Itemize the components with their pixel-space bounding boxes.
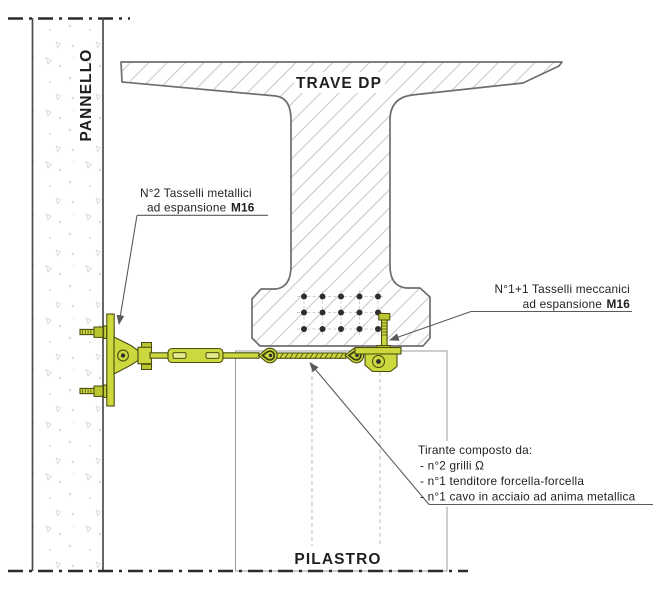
clevis-fork	[138, 343, 168, 370]
anchor-plate-bar	[107, 314, 114, 406]
turnbuckle-slot-right	[206, 353, 219, 359]
bracket-top-flange	[355, 348, 401, 355]
panel-label: PANNELLO	[78, 49, 95, 142]
turnbuckle-slot-left	[173, 353, 186, 359]
beam-label: TRAVE DP	[296, 75, 382, 92]
svg-text:ad espansione: ad espansione	[147, 201, 227, 215]
svg-text:N°1+1 Tasselli meccanici: N°1+1 Tasselli meccanici	[494, 282, 630, 296]
shackle-left	[259, 348, 278, 363]
turnbuckle-rod	[223, 353, 259, 358]
svg-text:M16: M16	[231, 201, 255, 215]
pillar-label: PILASTRO	[294, 551, 381, 568]
svg-text:Tirante composto da:: Tirante composto da:	[418, 443, 532, 457]
anchor-left-label: N°2 Tasselli metallici ad espansione M16	[140, 186, 255, 215]
steel-cable	[277, 353, 346, 358]
svg-text:- n°1 cavo in acciaio ad anima: - n°1 cavo in acciaio ad anima metallica	[420, 490, 636, 504]
svg-text:- n°2 grilli Ω: - n°2 grilli Ω	[420, 459, 484, 473]
svg-text:ad espansione: ad espansione	[523, 297, 603, 311]
tie-note-leader	[310, 363, 429, 505]
anchor-right-label: N°1+1 Tasselli meccanici ad espansione M…	[494, 282, 630, 311]
svg-text:M16: M16	[606, 297, 630, 311]
technical-drawing: TRAVE DP PILASTRO	[0, 0, 660, 600]
anchor-left-leader	[119, 215, 137, 324]
svg-text:- n°1 tenditore forcella-force: - n°1 tenditore forcella-forcella	[420, 474, 584, 488]
svg-text:N°2 Tasselli metallici: N°2 Tasselli metallici	[140, 186, 252, 200]
